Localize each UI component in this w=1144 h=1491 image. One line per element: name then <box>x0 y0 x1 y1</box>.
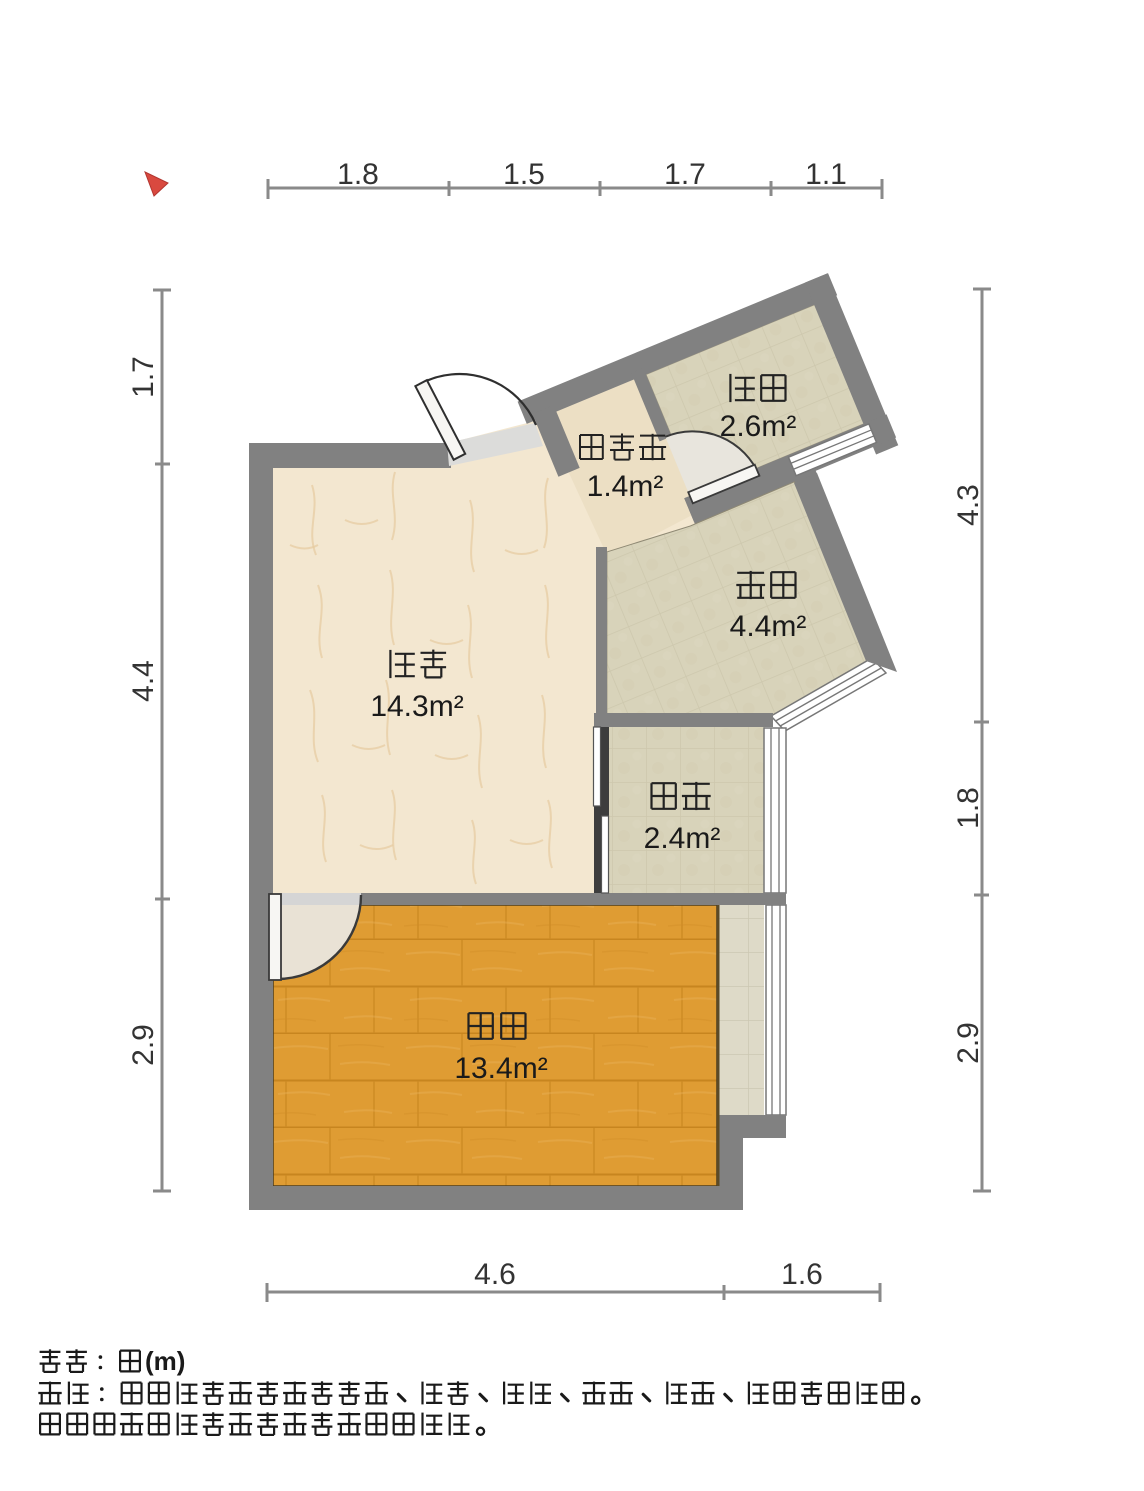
svg-text:14.3m²: 14.3m² <box>370 690 463 723</box>
svg-text:2.4m²: 2.4m² <box>644 822 721 855</box>
svg-text:1.4m²: 1.4m² <box>587 470 664 503</box>
svg-text:1.1: 1.1 <box>805 158 847 191</box>
svg-text:(m): (m) <box>145 1346 185 1376</box>
svg-text:1.6: 1.6 <box>781 1258 823 1291</box>
svg-text:1.8: 1.8 <box>337 158 379 191</box>
svg-text:13.4m²: 13.4m² <box>454 1052 547 1085</box>
svg-text:4.3: 4.3 <box>952 484 985 526</box>
svg-text:4.4: 4.4 <box>127 660 160 702</box>
svg-text:1.8: 1.8 <box>952 787 985 829</box>
svg-text:4.6: 4.6 <box>474 1258 516 1291</box>
svg-text:2.6m²: 2.6m² <box>720 410 797 443</box>
svg-text:4.4m²: 4.4m² <box>730 610 807 643</box>
svg-text:2.9: 2.9 <box>952 1022 985 1064</box>
svg-text:1.5: 1.5 <box>503 158 545 191</box>
svg-text:1.7: 1.7 <box>127 356 160 398</box>
svg-text:2.9: 2.9 <box>127 1024 160 1066</box>
svg-text:1.7: 1.7 <box>664 158 706 191</box>
